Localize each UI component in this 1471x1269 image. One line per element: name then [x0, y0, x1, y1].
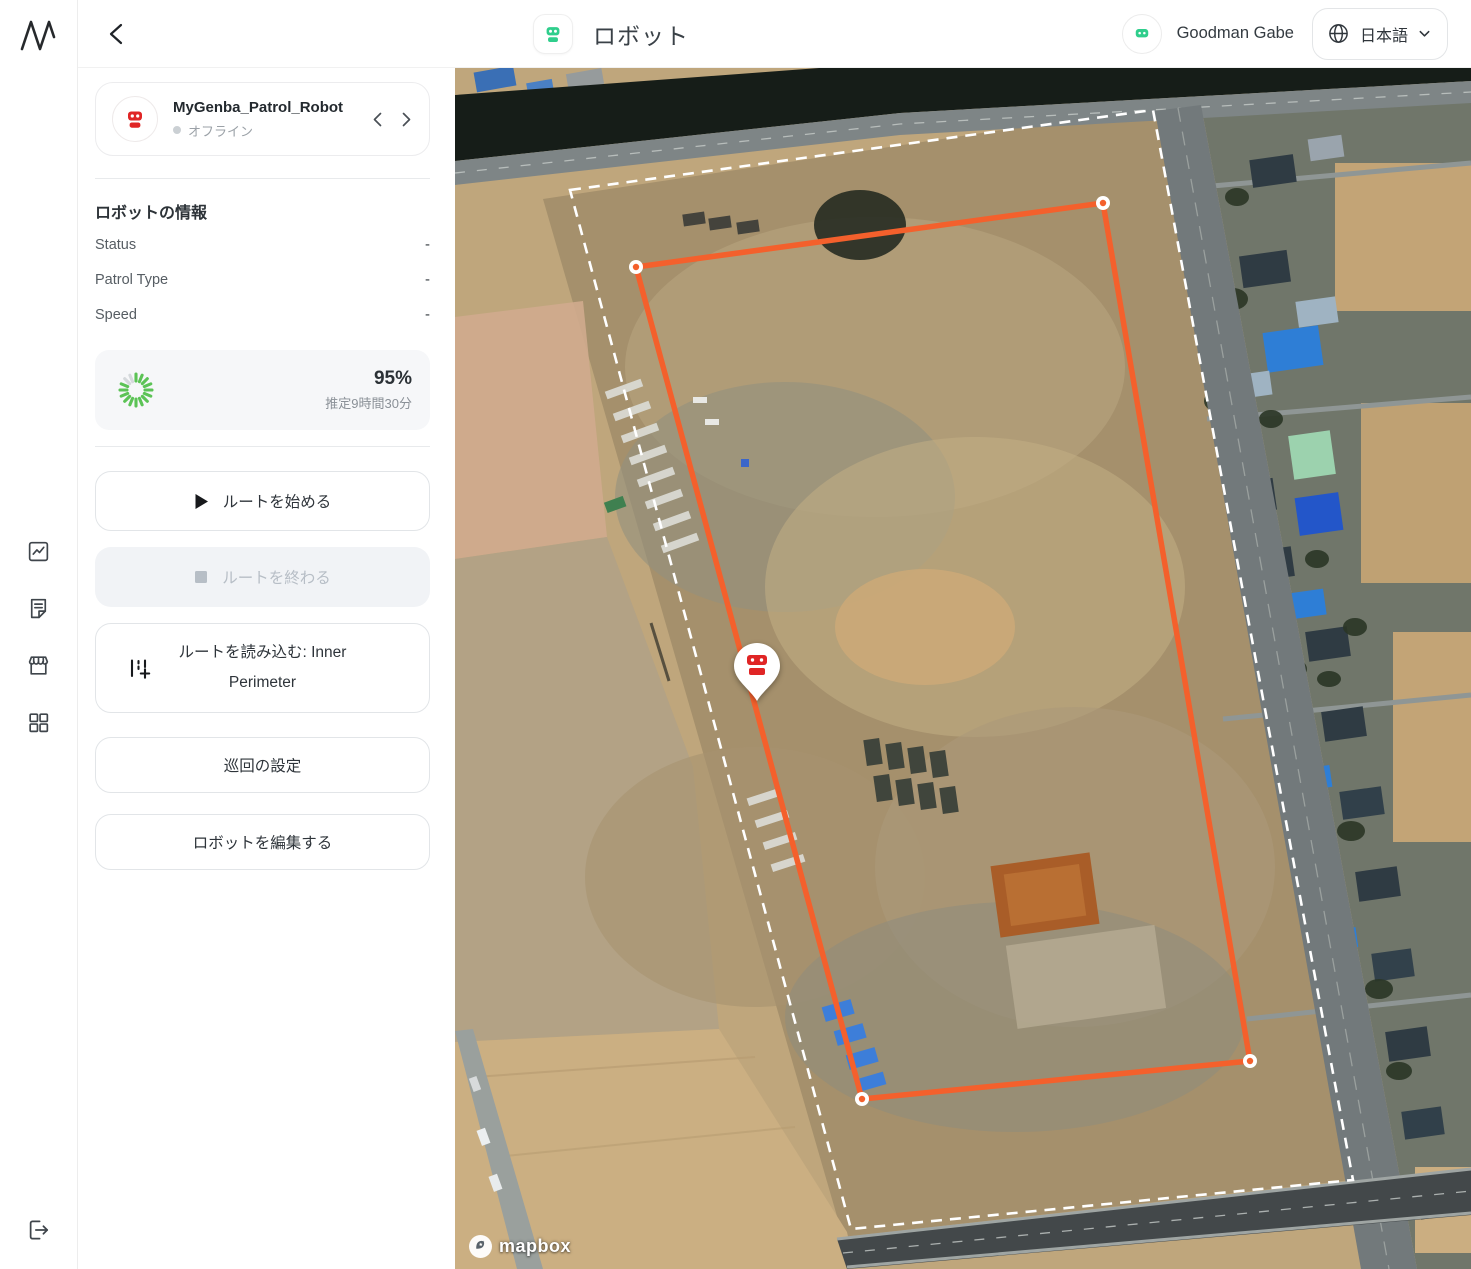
stop-icon	[194, 570, 208, 584]
divider	[95, 446, 430, 447]
edit-robot-button[interactable]: ロボットを編集する	[95, 814, 430, 870]
header-right: Goodman Gabe 日本語	[1122, 0, 1448, 67]
mapbox-attribution[interactable]: mapbox	[467, 1233, 571, 1260]
info-label: Status	[95, 237, 136, 253]
robot-meta: MyGenba_Patrol_Robot オフライン	[173, 99, 343, 140]
route-vertex	[1096, 196, 1110, 210]
chevron-left-icon	[371, 111, 384, 128]
chevron-right-icon	[400, 111, 413, 128]
logout-icon	[25, 1217, 51, 1243]
nav-apps[interactable]	[26, 709, 52, 735]
status-dot	[173, 126, 181, 134]
info-section-title: ロボットの情報	[95, 199, 430, 223]
load-route-button[interactable]: ルートを読み込む: Inner Perimeter	[95, 623, 430, 713]
globe-icon	[1327, 22, 1350, 45]
info-label: Speed	[95, 307, 137, 323]
mapbox-logo-icon	[467, 1233, 494, 1260]
satellite-map	[455, 67, 1471, 1269]
page-title: ロボット	[593, 17, 689, 51]
nav-store[interactable]	[26, 652, 52, 678]
back-button[interactable]	[103, 19, 133, 49]
robot-avatar	[112, 96, 158, 142]
play-icon	[194, 493, 209, 510]
start-route-label: ルートを始める	[223, 490, 332, 512]
robot-name: MyGenba_Patrol_Robot	[173, 99, 343, 116]
robot-badge	[533, 14, 573, 54]
back-icon	[103, 19, 133, 49]
battery-card: 95% 推定9時間30分	[95, 350, 430, 430]
user-name: Goodman Gabe	[1177, 24, 1294, 43]
battery-estimate: 推定9時間30分	[325, 393, 412, 412]
chart-icon	[26, 539, 51, 564]
route-vertex	[629, 260, 643, 274]
grid-icon	[26, 710, 51, 735]
divider	[95, 178, 430, 179]
rail-nav	[0, 538, 77, 735]
info-row-speed: Speed -	[95, 297, 430, 332]
battery-percent: 95%	[325, 368, 412, 390]
top-bar: ロボット Goodman Gabe 日本語	[77, 0, 1471, 68]
robot-switcher	[369, 109, 415, 130]
patrol-settings-button[interactable]: 巡回の設定	[95, 737, 430, 793]
user-menu[interactable]: Goodman Gabe	[1122, 14, 1294, 54]
end-route-label: ルートを終わる	[222, 566, 331, 588]
patrol-settings-label: 巡回の設定	[224, 754, 302, 776]
robot-icon	[542, 23, 564, 45]
load-route-icon	[128, 657, 152, 681]
start-route-button[interactable]: ルートを始める	[95, 471, 430, 531]
edit-robot-label: ロボットを編集する	[193, 831, 333, 853]
next-robot-button[interactable]	[398, 109, 415, 130]
storefront-icon	[26, 653, 51, 678]
info-value: -	[425, 271, 430, 288]
language-selector[interactable]: 日本語	[1312, 8, 1448, 60]
map-canvas[interactable]: mapbox	[455, 67, 1471, 1269]
page-title-group: ロボット	[533, 14, 689, 54]
report-icon	[26, 596, 51, 621]
app-logo	[18, 16, 58, 54]
robot-red-icon	[123, 107, 147, 131]
load-route-label: ルートを読み込む: Inner Perimeter	[150, 638, 375, 698]
logout-button[interactable]	[25, 1217, 51, 1243]
left-rail	[0, 0, 78, 1269]
status-text: オフライン	[188, 121, 253, 140]
nav-report[interactable]	[26, 595, 52, 621]
info-rows: Status - Patrol Type - Speed -	[95, 227, 430, 332]
avatar	[1122, 14, 1162, 54]
language-label: 日本語	[1360, 22, 1408, 46]
info-value: -	[425, 236, 430, 253]
prev-robot-button[interactable]	[369, 109, 386, 130]
info-value: -	[425, 306, 430, 323]
route-vertex	[855, 1092, 869, 1106]
mapbox-wordmark: mapbox	[499, 1236, 571, 1257]
robot-card: MyGenba_Patrol_Robot オフライン	[95, 82, 430, 156]
end-route-button[interactable]: ルートを終わる	[95, 547, 430, 607]
nav-chart[interactable]	[26, 538, 52, 564]
route-vertex	[1243, 1054, 1257, 1068]
chevron-down-icon	[1418, 27, 1431, 40]
robot-avatar-icon	[1132, 24, 1152, 44]
battery-spinner-icon	[113, 367, 159, 413]
robot-status: オフライン	[173, 121, 343, 140]
battery-text: 95% 推定9時間30分	[325, 368, 412, 412]
robot-panel: MyGenba_Patrol_Robot オフライン ロボットの情報 Statu…	[77, 67, 455, 1269]
info-row-patrol-type: Patrol Type -	[95, 262, 430, 297]
info-row-status: Status -	[95, 227, 430, 262]
info-label: Patrol Type	[95, 272, 168, 288]
